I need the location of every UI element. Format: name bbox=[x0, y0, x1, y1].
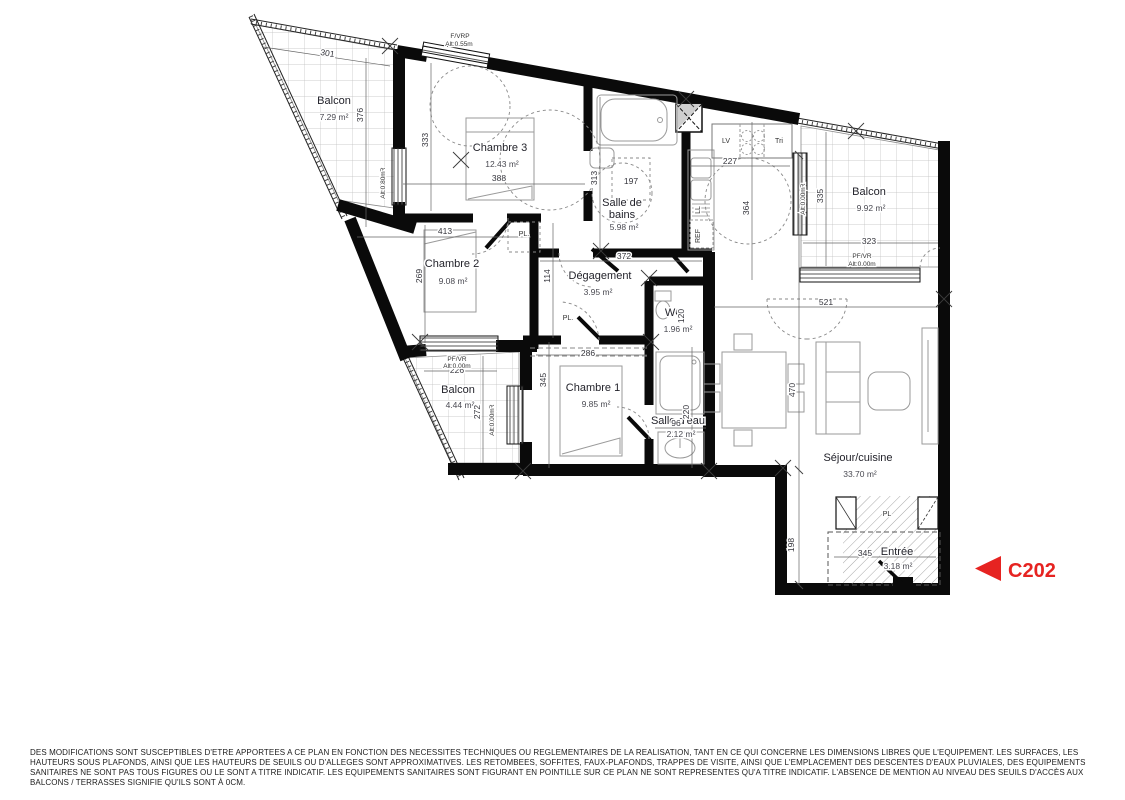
unit-arrow-icon bbox=[975, 556, 1001, 581]
dim-ch3-w: 388 bbox=[492, 173, 506, 183]
room-area-sdb: 5.98 m² bbox=[610, 222, 639, 232]
dim-sejour-h: 470 bbox=[787, 383, 797, 397]
floor-plan-drawing: Balcon 7.29 m² Chambre 3 12.43 m² Salle … bbox=[0, 0, 1125, 800]
fridge-label: REF bbox=[695, 229, 702, 243]
dim-deg-h: 114 bbox=[542, 269, 552, 283]
opening-balcon3e-l2: Alt:0.00m bbox=[489, 408, 496, 435]
dim-kitchen-h: 364 bbox=[741, 201, 751, 215]
room-label-sdb-1: Salle de bbox=[602, 197, 642, 209]
dim-wc-h: 120 bbox=[676, 309, 686, 323]
duct-shaft bbox=[676, 104, 702, 132]
dim-sde-h: 220 bbox=[681, 405, 691, 419]
washer-label: LL bbox=[695, 206, 702, 214]
dim-hall-w: 286 bbox=[581, 348, 595, 358]
room-area-chambre1: 9.85 m² bbox=[582, 399, 611, 409]
dim-ch2-h: 269 bbox=[414, 269, 424, 283]
disclaimer: DES MODIFICATIONS SONT SUSCEPTIBLES D'ET… bbox=[30, 748, 1112, 788]
opening-balcon2s-l2: Alt:0.00m bbox=[848, 261, 875, 268]
dim-balcon1-h: 376 bbox=[355, 108, 365, 122]
room-area-degagement: 3.95 m² bbox=[584, 287, 613, 297]
room-label-balcon-tl: Balcon bbox=[317, 95, 351, 107]
floor-plan-page: Balcon 7.29 m² Chambre 3 12.43 m² Salle … bbox=[0, 0, 1125, 800]
room-label-balcon-r: Balcon bbox=[852, 186, 886, 198]
window-chambre1-west bbox=[507, 386, 523, 444]
dishwasher-label: LV bbox=[722, 138, 730, 145]
room-label-sdb-2: bains bbox=[609, 209, 636, 221]
closet-label-chambre3: PL. bbox=[519, 231, 530, 238]
opening-ch3w-l2: Alt:0.80m bbox=[380, 171, 387, 198]
dim-ch1-h: 345 bbox=[538, 373, 548, 387]
disclaimer-line-2: HAUTEURS SOUS PLAFONDS, AINSI QUE LES HA… bbox=[30, 758, 1112, 768]
room-area-sejour: 33.70 m² bbox=[843, 469, 877, 479]
opening-balcon2s-l1: PF/VR bbox=[852, 253, 871, 260]
room-label-chambre2: Chambre 2 bbox=[425, 258, 479, 270]
dim-balcon2-h: 335 bbox=[815, 189, 825, 203]
room-area-balcon-bl: 4.44 m² bbox=[446, 400, 475, 410]
opening-balcon3n-l2: Alt:0.00m bbox=[443, 363, 470, 370]
opening-balcon2w-l2: Alt:0.00m bbox=[800, 187, 807, 214]
opening-top-l2: Alt:0.55m bbox=[445, 41, 472, 48]
room-area-balcon-tl: 7.29 m² bbox=[320, 112, 349, 122]
dim-deg-w: 372 bbox=[617, 251, 631, 261]
dim-kitchen-w: 227 bbox=[723, 156, 737, 166]
closet-label-degagement: PL. bbox=[563, 315, 574, 322]
dim-sde-w: 96 bbox=[671, 418, 681, 428]
dim-ch3-h: 333 bbox=[420, 133, 430, 147]
dim-ch2-w: 413 bbox=[438, 226, 452, 236]
room-label-chambre1: Chambre 1 bbox=[566, 382, 620, 394]
closet-label-entree: PL bbox=[883, 511, 892, 518]
room-area-balcon-r: 9.92 m² bbox=[857, 203, 886, 213]
dim-entree-h: 198 bbox=[786, 538, 796, 552]
entree-zone bbox=[828, 496, 940, 586]
dim-sdb-inner: 197 bbox=[624, 176, 638, 186]
dim-sdb-h: 313 bbox=[589, 171, 599, 185]
disclaimer-line-3: SANITAIRES NE SONT PAS TOUS FIGURES OU L… bbox=[30, 768, 1112, 778]
disclaimer-line-1: DES MODIFICATIONS SONT SUSCEPTIBLES D'ET… bbox=[30, 748, 1112, 758]
dim-sejour-w: 521 bbox=[819, 297, 833, 307]
room-area-chambre2: 9.08 m² bbox=[439, 276, 468, 286]
room-label-balcon-bl: Balcon bbox=[441, 384, 475, 396]
unit-marker: C202 bbox=[975, 556, 1056, 582]
window-balcon-bl-north bbox=[420, 336, 498, 351]
dim-entree-w: 345 bbox=[858, 548, 872, 558]
disclaimer-line-4: BALCONS / TERRASSES SIGNIFIE QU'ILS SONT… bbox=[30, 778, 1112, 788]
dim-balcon2-w: 323 bbox=[862, 236, 876, 246]
opening-balcon3n-l1: PF/VR bbox=[447, 356, 466, 363]
room-label-sejour: Séjour/cuisine bbox=[823, 452, 892, 464]
room-area-entree: 3.18 m² bbox=[884, 561, 913, 571]
room-area-chambre3: 12.43 m² bbox=[485, 159, 519, 169]
opening-top-l1: F/VRP bbox=[450, 33, 469, 40]
room-area-sde: 2.12 m² bbox=[667, 429, 696, 439]
tri-label: Tri bbox=[775, 138, 783, 145]
window-balcon-right-south bbox=[800, 268, 920, 282]
room-area-wc: 1.96 m² bbox=[664, 324, 693, 334]
unit-label: C202 bbox=[1008, 560, 1056, 582]
window-chambre3-west bbox=[392, 148, 406, 205]
dim-balcon3-h: 272 bbox=[472, 405, 482, 419]
room-label-entree: Entrée bbox=[881, 546, 913, 558]
room-label-chambre3: Chambre 3 bbox=[473, 142, 527, 154]
room-label-degagement: Dégagement bbox=[569, 270, 632, 282]
